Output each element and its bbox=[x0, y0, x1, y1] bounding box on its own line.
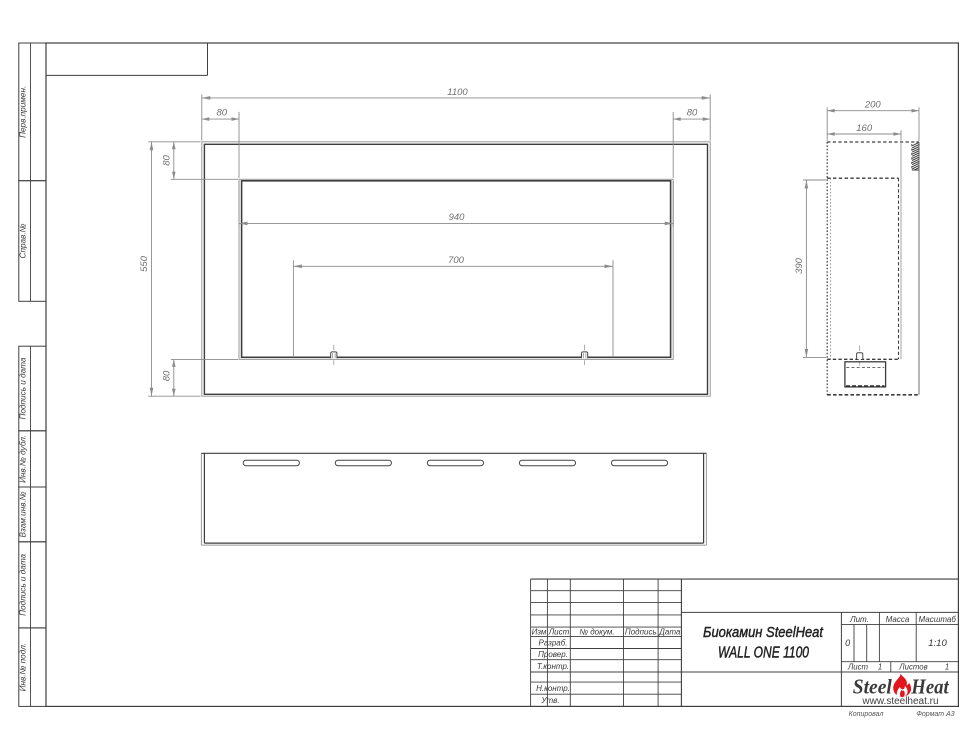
svg-text:80: 80 bbox=[687, 108, 698, 119]
svg-text:Инв.№ дубл.: Инв.№ дубл. bbox=[19, 435, 28, 483]
svg-text:www.steelheat.ru: www.steelheat.ru bbox=[861, 696, 938, 707]
svg-text:1:10: 1:10 bbox=[928, 638, 947, 649]
svg-text:Перв.примен.: Перв.примен. bbox=[19, 86, 28, 138]
svg-text:940: 940 bbox=[449, 212, 466, 223]
svg-text:0: 0 bbox=[845, 638, 850, 648]
svg-text:200: 200 bbox=[864, 100, 882, 111]
svg-text:Дата: Дата bbox=[658, 627, 681, 636]
svg-text:700: 700 bbox=[448, 255, 465, 266]
svg-text:Лист: Лист bbox=[847, 663, 869, 672]
svg-text:80: 80 bbox=[217, 108, 228, 119]
svg-text:№ докум.: № докум. bbox=[579, 627, 614, 636]
svg-text:Heat: Heat bbox=[910, 675, 949, 699]
svg-text:Справ.№: Справ.№ bbox=[19, 223, 28, 258]
svg-text:Масштаб: Масштаб bbox=[919, 615, 957, 624]
svg-text:1: 1 bbox=[878, 663, 882, 672]
svg-text:Инв.№ подл.: Инв.№ подл. bbox=[19, 643, 28, 692]
svg-text:Н.контр.: Н.контр. bbox=[536, 684, 570, 693]
svg-text:Утв.: Утв. bbox=[540, 696, 559, 705]
svg-text:Разраб.: Разраб. bbox=[539, 639, 568, 648]
svg-text:Биокамин SteelHeat: Биокамин SteelHeat bbox=[703, 624, 824, 641]
svg-text:Изм: Изм bbox=[532, 627, 547, 636]
svg-text:Копировал: Копировал bbox=[849, 711, 884, 718]
svg-text:1: 1 bbox=[945, 663, 949, 672]
svg-text:Лист: Лист bbox=[548, 627, 570, 636]
svg-text:Лит.: Лит. bbox=[849, 615, 869, 624]
svg-text:Взам.инв.№: Взам.инв.№ bbox=[19, 491, 28, 537]
svg-text:80: 80 bbox=[162, 370, 173, 381]
svg-text:390: 390 bbox=[794, 257, 805, 274]
svg-text:Т.контр.: Т.контр. bbox=[537, 662, 569, 671]
svg-text:160: 160 bbox=[856, 123, 873, 134]
svg-text:1100: 1100 bbox=[447, 87, 468, 98]
svg-text:Подпись: Подпись bbox=[625, 627, 657, 636]
svg-text:Листов: Листов bbox=[898, 663, 927, 672]
svg-text:Провер.: Провер. bbox=[538, 650, 568, 659]
svg-text:Формат А3: Формат А3 bbox=[916, 711, 954, 718]
svg-text:Подпись и дата: Подпись и дата bbox=[19, 357, 28, 419]
svg-text:Steel: Steel bbox=[853, 675, 892, 699]
svg-text:550: 550 bbox=[139, 255, 150, 272]
svg-text:WALL ONE 1100: WALL ONE 1100 bbox=[718, 645, 809, 662]
svg-text:Подпись и дата: Подпись и дата bbox=[19, 553, 28, 615]
svg-text:80: 80 bbox=[162, 155, 173, 166]
svg-text:Масса: Масса bbox=[886, 615, 910, 624]
